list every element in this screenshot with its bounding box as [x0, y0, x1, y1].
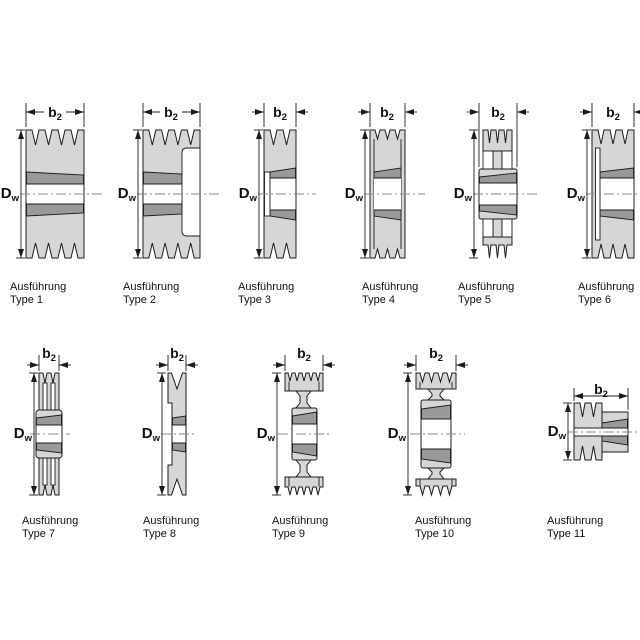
- type-caption: AusführungType 7: [22, 515, 78, 541]
- pulley-section: [278, 373, 332, 495]
- type-caption: AusführungType 2: [123, 281, 179, 307]
- type-caption: AusführungType 3: [238, 281, 294, 307]
- pulley-section: [586, 130, 640, 258]
- type-caption: AusführungType 8: [143, 515, 199, 541]
- b2-dimension-label: b2: [158, 104, 184, 121]
- dw-dimension-label: Dw: [386, 425, 406, 443]
- type-caption: AusführungType 5: [458, 281, 514, 307]
- pulley-type-11-block: b2 Dw AusführungType 11: [535, 340, 640, 550]
- pulley-type-10-block: b2 Dw AusführungType 10: [385, 340, 485, 550]
- type-caption: AusführungType 9: [272, 515, 328, 541]
- pulley-section: [161, 373, 196, 495]
- pulley-type-3-block: b2 Dw AusführungType 3: [238, 96, 338, 311]
- b2-dimension-label: b2: [164, 345, 190, 362]
- pulley-section: [568, 403, 638, 460]
- dw-dimension-label: Dw: [544, 423, 566, 441]
- b2-dimension-label: b2: [588, 381, 614, 398]
- dw-dimension-label: Dw: [344, 185, 363, 203]
- b2-dimension-label: b2: [291, 345, 317, 362]
- side-recess: [182, 148, 200, 236]
- dw-dimension-label: Dw: [564, 185, 585, 203]
- pulley-type-2-block: b2 Dw AusführungType 2: [117, 96, 227, 311]
- pulley-section: [137, 130, 221, 258]
- dw-dimension-label: Dw: [255, 425, 275, 443]
- pulley-type-6-block: b2 Dw AusführungType 6: [560, 96, 640, 311]
- type-caption: AusführungType 11: [547, 515, 603, 541]
- pulley-section: [410, 373, 465, 495]
- type-4-drawing: [344, 96, 444, 268]
- pulley-type-8-block: b2 Dw AusführungType 8: [130, 340, 210, 550]
- type-caption: AusführungType 4: [362, 281, 418, 307]
- b2-dimension-label: b2: [374, 104, 400, 121]
- dw-dimension-label: Dw: [140, 425, 160, 443]
- pulley-types-diagram: b2 Dw AusführungType 1: [0, 0, 640, 640]
- dw-dimension-label: Dw: [453, 185, 472, 203]
- type-1-drawing: [0, 96, 110, 268]
- type-6-drawing: [560, 96, 640, 268]
- dw-dimension-label: Dw: [238, 185, 257, 203]
- pulley-type-9-block: b2 Dw AusführungType 9: [250, 340, 350, 550]
- pulley-type-4-block: b2 Dw AusführungType 4: [344, 96, 444, 311]
- pulley-type-5-block: b2 Dw AusführungType 5: [453, 96, 553, 311]
- type-caption: AusführungType 6: [578, 281, 634, 307]
- dw-dimension-label: Dw: [117, 185, 136, 203]
- pulley-type-7-block: b2 Dw AusführungType 7: [0, 340, 80, 550]
- b2-dimension-label: b2: [600, 104, 626, 121]
- type-caption: AusführungType 10: [415, 515, 471, 541]
- pulley-section: [20, 130, 104, 258]
- b2-dimension-label: b2: [267, 104, 293, 121]
- pulley-section: [473, 130, 537, 258]
- type-caption: AusführungType 1: [10, 281, 66, 307]
- b2-dimension-label: b2: [36, 345, 62, 362]
- pulley-section: [364, 130, 425, 258]
- dw-dimension-label: Dw: [12, 425, 32, 443]
- b2-dimension-label: b2: [42, 104, 68, 121]
- b2-dimension-label: b2: [423, 345, 449, 362]
- pulley-type-1-block: b2 Dw AusführungType 1: [0, 96, 110, 311]
- pulley-section: [258, 130, 316, 258]
- b2-dimension-label: b2: [485, 104, 511, 121]
- pulley-section: [30, 373, 70, 495]
- dw-dimension-label: Dw: [0, 185, 19, 203]
- type-3-drawing: [238, 96, 338, 268]
